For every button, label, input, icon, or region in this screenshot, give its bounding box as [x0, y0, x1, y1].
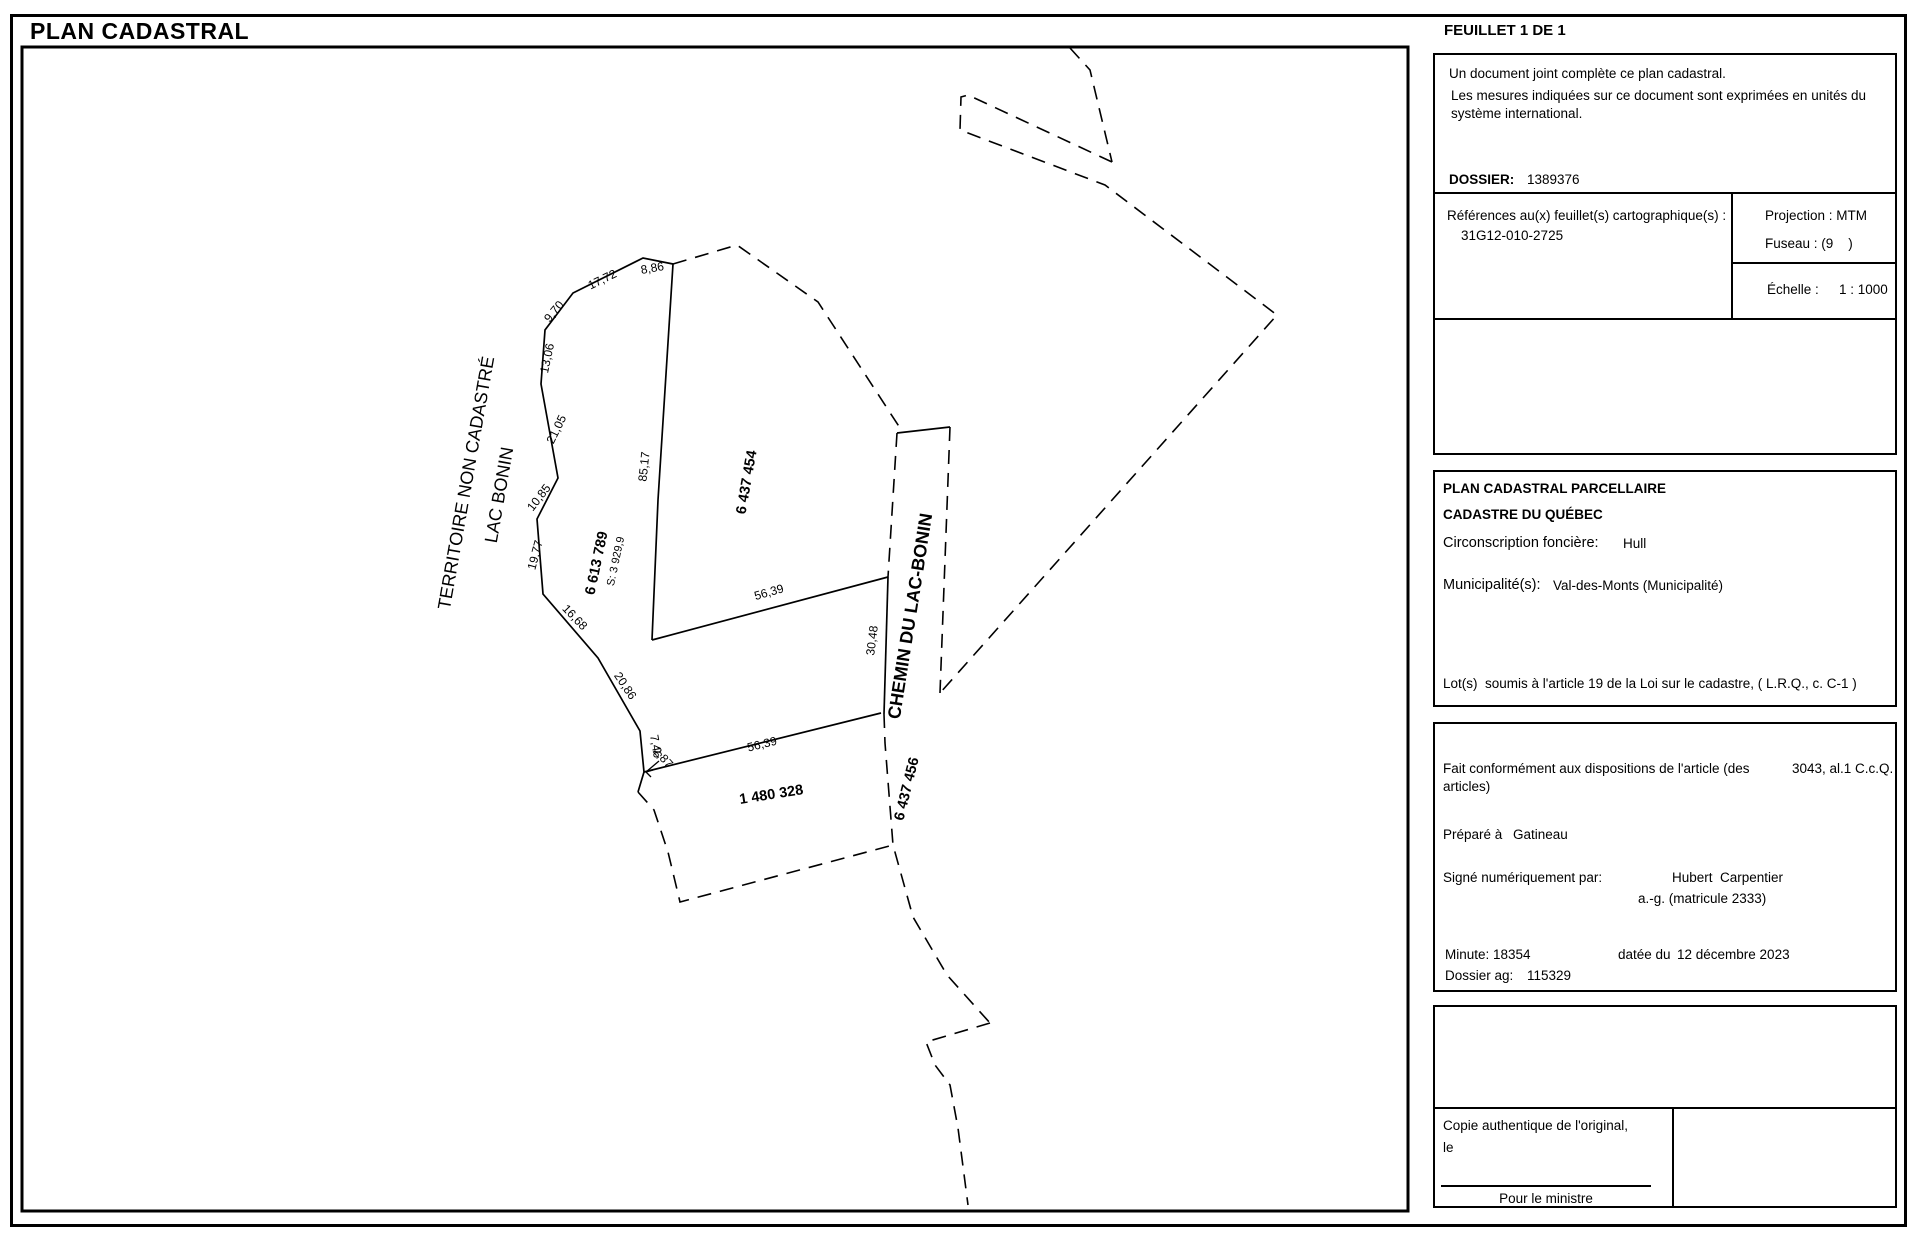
echelle-value: 1 : 1000 [1839, 281, 1888, 299]
minister-label: Pour le ministre [1441, 1190, 1651, 1208]
divider [1731, 192, 1733, 318]
dossier-ag-label: Dossier ag: [1445, 967, 1513, 985]
divider [1435, 318, 1895, 320]
plan-title-line2: CADASTRE DU QUÉBEC [1443, 506, 1603, 524]
circonscription-label: Circonscription foncière: [1443, 534, 1599, 554]
lots-note: Lot(s) soumis à l'article 19 de la Loi s… [1443, 675, 1893, 693]
minister-signature-line [1441, 1185, 1651, 1187]
plan-title-line1: PLAN CADASTRAL PARCELLAIRE [1443, 480, 1666, 498]
measure-label: 13,06 [537, 342, 557, 375]
municipalite-label: Municipalité(s): [1443, 576, 1541, 596]
prepare-label: Préparé à [1443, 826, 1502, 844]
measurement-labels: 8,86 17,72 9,70 13,06 21,05 10,85 19,77 … [524, 259, 881, 771]
signe-label: Signé numériquement par: [1443, 869, 1602, 887]
copy-line2: le [1443, 1139, 1454, 1157]
dossier-value: 1389376 [1527, 171, 1580, 189]
info-line1: Un document joint complète ce plan cadas… [1449, 65, 1889, 83]
municipalite-value: Val-des-Monts (Municipalité) [1553, 577, 1723, 595]
territory-label-line1: TERRITOIRE NON CADASTRÉ [434, 355, 498, 611]
references-label: Références au(x) feuillet(s) cartographi… [1447, 207, 1727, 225]
echelle-label: Échelle : [1767, 281, 1819, 299]
plan-title-box: PLAN CADASTRAL PARCELLAIRE CADASTRE DU Q… [1433, 470, 1897, 707]
territory-label-line2: LAC BONIN [481, 445, 518, 544]
measure-label: 8,86 [640, 259, 666, 277]
date-value: 12 décembre 2023 [1677, 946, 1790, 964]
map-frame [22, 47, 1408, 1211]
measure-label: 10,85 [524, 481, 554, 514]
road-name-label: CHEMIN DU LAC-BONIN [884, 512, 936, 721]
info-line2: Les mesures indiquées sur ce document so… [1451, 87, 1883, 123]
fuseau-value: Fuseau : (9 ) [1765, 235, 1853, 253]
fait-value: 3043, al.1 C.c.Q. [1792, 760, 1893, 778]
circonscription-value: Hull [1623, 535, 1646, 553]
signe-title: a.-g. (matricule 2333) [1638, 890, 1766, 908]
prepare-value: Gatineau [1513, 826, 1568, 844]
measure-label: 20,86 [611, 669, 640, 702]
references-value: 31G12-010-2725 [1461, 227, 1563, 245]
measure-label: 85,17 [635, 451, 652, 483]
measure-label: 19,77 [524, 538, 545, 571]
signe-name: Hubert Carpentier [1672, 869, 1783, 887]
minute-label: Minute: 18354 [1445, 946, 1531, 964]
info-references-box: Un document joint complète ce plan cadas… [1433, 53, 1897, 455]
authentic-copy-box: Copie authentique de l'original, le Pour… [1433, 1005, 1897, 1208]
projection-value: Projection : MTM [1765, 207, 1867, 225]
certification-box: Fait conformément aux dispositions de l'… [1433, 722, 1897, 992]
measure-label: 17,72 [586, 266, 619, 292]
measure-label: 56,39 [753, 581, 786, 603]
measure-label: 56,39 [746, 734, 779, 755]
parcel-boundary-dashed-lines [638, 48, 1277, 1205]
toponym-labels: TERRITOIRE NON CADASTRÉ LAC BONIN CHEMIN… [434, 355, 936, 721]
date-label: datée du [1618, 946, 1671, 964]
dossier-ag-value: 115329 [1527, 967, 1571, 985]
measure-label: 9,70 [541, 298, 567, 325]
divider [1731, 262, 1895, 264]
lot-number-6437456: 6 437 456 [892, 756, 923, 822]
copy-line1: Copie authentique de l'original, [1443, 1117, 1628, 1135]
lot-number-6437454: 6 437 454 [734, 449, 761, 515]
divider [1435, 1107, 1895, 1109]
lot-number-1480328: 1 480 328 [738, 782, 804, 808]
divider [1672, 1107, 1674, 1206]
lot-number-6613789: 6 613 789 [583, 530, 612, 596]
divider [1435, 192, 1895, 194]
fait-label: Fait conformément aux dispositions de l'… [1443, 760, 1793, 796]
dossier-label: DOSSIER: [1449, 171, 1514, 189]
measure-label: 30,48 [863, 624, 881, 656]
cadastral-plan-page: { "page": { "title": "PLAN CADASTRAL", "… [0, 0, 1920, 1242]
